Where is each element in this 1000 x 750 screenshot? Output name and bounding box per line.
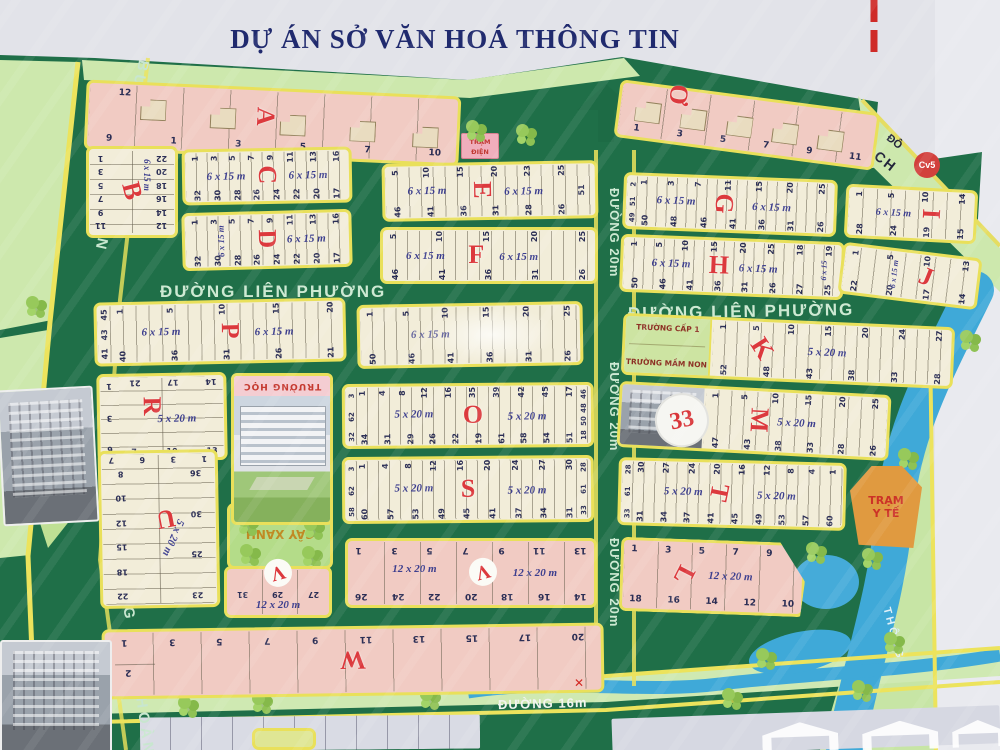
dim-label: 6 x 15 m: [216, 225, 227, 257]
plot-numbers: 454341: [99, 310, 111, 358]
plot-number: 9: [311, 634, 318, 644]
block-letter-D: D: [252, 229, 282, 249]
plot-number: 3: [209, 155, 218, 162]
plot-number: 18: [580, 430, 588, 440]
plot-number: 33: [623, 508, 631, 518]
plot-number: 43: [100, 329, 109, 340]
plot-number: 14: [957, 293, 967, 305]
plot-number: 45: [463, 508, 472, 519]
plot-number: 46: [391, 269, 400, 280]
dim-label: 6 x 15 m: [411, 328, 450, 341]
plot-number: 17: [519, 632, 532, 642]
plot-number: 30: [565, 459, 574, 470]
block-letter-S: S: [461, 473, 476, 503]
plot-number: 9: [265, 154, 274, 161]
plot-number: 31: [524, 351, 533, 362]
plot-number: 13: [309, 151, 318, 162]
tree-icon: [466, 120, 479, 133]
plot-number: 5: [389, 233, 398, 240]
plot-number: 10: [115, 494, 126, 503]
plot-numbers: 510152025: [390, 232, 588, 241]
plot-numbers: 1357911: [95, 154, 106, 230]
plot-number: 54: [542, 432, 551, 443]
tram-dien-box: TRẠM ĐIỆN: [461, 133, 499, 159]
plot-number: 11: [723, 180, 732, 191]
block-F: 510152025 4641363126 6 x 15 m 6 x 15 m F: [380, 227, 598, 284]
tree-icon: [26, 296, 39, 309]
page-title: DỰ ÁN SỞ VĂN HOÁ THÔNG TIN: [175, 24, 735, 55]
school-photo-block: TRƯỜNG HỌC: [231, 373, 333, 525]
plot-number: 33: [805, 442, 815, 454]
dim-label: 6 x 15 m: [288, 169, 327, 182]
plot-number: 12: [116, 518, 127, 527]
plot-number: 28: [580, 462, 588, 472]
dim-label: 6 x 15 m: [255, 326, 294, 339]
plot-number: 1: [355, 545, 362, 555]
plot-number: 28: [233, 255, 242, 266]
dim-label: 6 x 15 m: [752, 200, 791, 213]
apartment-photo-top: [0, 386, 99, 527]
plot-number: 27: [662, 462, 671, 473]
plot-number: 14: [705, 597, 718, 607]
plot-number: 20: [572, 631, 585, 641]
plot-number: 30: [191, 509, 202, 518]
dim-label: 6 x 15 m: [406, 250, 445, 262]
plot-numbers: 36302523: [190, 468, 203, 599]
plot-number: 29: [406, 433, 415, 444]
plot-number: 1: [95, 154, 106, 163]
plot-number: 10: [787, 324, 796, 336]
block-letter-A: A: [250, 106, 281, 126]
plot-numbers: 148121620242730: [359, 460, 575, 471]
plot-number: 38: [774, 440, 784, 452]
plot-number: 26: [274, 348, 283, 359]
tree-icon: [862, 548, 875, 561]
dim-label: 6 x 15 m: [738, 262, 777, 275]
plot-number: 16: [331, 213, 340, 224]
plot-number: 45: [100, 309, 109, 320]
plot-number: 49: [437, 508, 446, 519]
plot-number: 15: [116, 543, 127, 552]
dim-label: 6 x 15 m: [499, 251, 538, 263]
plot-number: 46: [393, 206, 402, 217]
plot-number: 5: [228, 155, 237, 162]
plot-number: 60: [360, 509, 369, 520]
cay-xanh-label: CÂY XANH: [246, 527, 314, 541]
tree-icon: [756, 648, 769, 661]
plot-numbers: 286133: [622, 465, 633, 517]
dim-label: 5 x 20 m: [508, 484, 547, 496]
plot-number: 31: [565, 507, 574, 518]
plot-number: 41: [706, 512, 715, 523]
plot-number: 52: [719, 364, 728, 376]
plot-number: 10: [771, 393, 781, 405]
plot-number: 24: [392, 591, 405, 601]
plot-number: 58: [348, 507, 356, 517]
plot-number: 41: [100, 348, 109, 359]
plot-number: 27: [795, 283, 804, 294]
plot-number: 19: [824, 245, 833, 256]
plot-number: 28: [524, 204, 533, 215]
plot-number: 9: [805, 146, 813, 157]
plot-number: 26: [816, 221, 825, 232]
plot-number: 22: [293, 253, 302, 264]
plot-number: 45: [730, 513, 739, 524]
school-zone: TRƯỜNG CẤP 1 TRƯỜNG MẦM NON: [624, 316, 712, 376]
plot-number: 16: [738, 464, 747, 475]
plot-number: 1: [828, 469, 837, 476]
plot-number: 1: [358, 463, 367, 470]
plot-number: 28: [233, 189, 242, 200]
dim-label: 6 x 15 m: [656, 195, 695, 208]
plot-number: 1: [855, 190, 864, 197]
dim-label: 5 x 20 m: [757, 490, 796, 503]
plot-number: 49: [754, 514, 763, 525]
plot-numbers: 81012151822: [115, 470, 128, 601]
plot-number: 23: [523, 165, 532, 176]
plot-number: 8: [398, 390, 407, 397]
block-letter-O: O: [463, 399, 483, 429]
plot-number: 37: [683, 512, 692, 523]
tree-icon: [898, 448, 911, 461]
plot-number: 31: [237, 590, 248, 599]
plot-number: 11: [359, 634, 372, 644]
plot-number: 35: [468, 387, 477, 398]
block-letter-C: C: [252, 165, 282, 184]
plot-number: 12: [743, 598, 756, 608]
bottom-green-parcel: [252, 728, 316, 750]
plot-number: 27: [537, 459, 546, 470]
plot-number: 25: [191, 550, 202, 559]
plot-number: 20: [712, 463, 721, 474]
plot-number: 22: [428, 591, 441, 601]
block-S: 36258 286133 148121620242730 60575349454…: [342, 455, 595, 524]
plot-number: 36: [757, 219, 766, 230]
plot-number: 22: [292, 188, 301, 199]
plot-number: 22: [156, 154, 167, 163]
plot-number: 22: [117, 591, 128, 600]
plot-number: 18: [156, 181, 167, 190]
plot-number: 24: [889, 225, 899, 237]
plot-numbers: 136: [105, 382, 113, 454]
plot-number: 10: [921, 191, 931, 203]
plot-number: 10: [428, 148, 441, 159]
plot-number: 10: [422, 167, 431, 178]
plot-number: 5: [216, 636, 223, 646]
tree-icon: [240, 544, 253, 557]
block-letter-R: R: [137, 396, 167, 415]
dim-label: 12 x 20 m: [708, 569, 753, 583]
plot-number: 10: [781, 599, 794, 609]
plot-numbers: 14812163539424517: [359, 387, 575, 398]
dim-label: 5 x 20 m: [394, 483, 433, 495]
plot-number: 34: [539, 507, 548, 518]
plot-number: 26: [768, 282, 777, 293]
plot-number: 7: [108, 456, 115, 465]
plot-number: 20: [860, 327, 869, 339]
plot-number: 1: [851, 249, 861, 257]
plot-number: 31: [635, 510, 644, 521]
plot-number: 36: [170, 350, 179, 361]
plot-number: 33: [890, 371, 899, 383]
plot-number: 30: [213, 190, 222, 201]
plot-number: 15: [755, 181, 764, 192]
plot-number: 22: [451, 433, 460, 444]
plot-number: 10: [217, 304, 226, 315]
plot-number: 48: [580, 403, 588, 413]
plot-number: 36: [713, 280, 722, 291]
plot-number: 13: [961, 260, 971, 272]
block-D: 13579111316 3230282624222017 6 x 15 m 6 …: [181, 209, 352, 271]
plot-number: 26: [253, 254, 262, 265]
plot-number: 20: [312, 253, 321, 264]
block-V1: V 312927 12 x 20 m: [224, 566, 332, 618]
plot-number: 5: [752, 324, 761, 331]
plot-number: 16: [667, 595, 680, 605]
plot-number: 26: [428, 433, 437, 444]
plot-number: 53: [411, 508, 420, 519]
plot-number: 22: [849, 280, 859, 292]
plot-numbers: 36232: [347, 392, 357, 441]
plot-number: 15: [956, 228, 966, 240]
subdivision-map: DỰ ÁN SỞ VĂN HOÁ THÔNG TIN ĐƯỜNG LIÊN PH…: [0, 0, 1000, 750]
plot-number: 11: [286, 214, 295, 225]
plot-numbers: 286133: [579, 463, 589, 514]
plot-number: 32: [193, 256, 202, 267]
plot-number: 12: [118, 88, 131, 99]
plot-numbers: 605753494541373431: [359, 508, 575, 519]
plot-number: 46: [699, 217, 708, 228]
plot-number: 12: [429, 460, 438, 471]
plot-number: 1: [711, 392, 720, 399]
plot-number: 8: [786, 467, 795, 474]
plot-number: 7: [762, 140, 770, 151]
dim-label: 12 x 20 m: [256, 599, 300, 611]
plot-number: 24: [897, 329, 906, 341]
plot-number: 24: [273, 254, 282, 265]
plot-number: 1: [632, 123, 640, 134]
plot-number: 11: [533, 545, 546, 555]
plot-number: 38: [847, 370, 856, 382]
plot-number: 3: [168, 636, 175, 646]
plot-number: 20: [156, 167, 167, 176]
plot-number: 9: [766, 549, 773, 559]
plot-numbers: 34312926221961585451: [359, 433, 575, 444]
plot-number: 26: [557, 204, 566, 215]
plot-number: 43: [742, 438, 752, 450]
plot-number: 10: [681, 240, 690, 251]
block-P: 454341 15101520 4036312621 6 x 15 m 6 x …: [93, 297, 346, 366]
plot-number: 28: [855, 223, 865, 235]
block-H: 15101520251819 5046413631262725 6 x 15 m…: [619, 234, 845, 301]
plot-number: 61: [497, 433, 506, 444]
tram-y-te-line2: Y TẾ: [873, 507, 900, 520]
plot-number: 20: [522, 306, 531, 317]
dim-label: 12 x 20 m: [392, 563, 436, 575]
plot-number: 12: [156, 221, 167, 230]
plot-numbers: 135791113: [355, 545, 587, 555]
plot-number: 13: [308, 214, 317, 225]
plot-number: 36: [484, 269, 493, 280]
plot-number: 61: [580, 484, 588, 494]
plot-number: 49: [628, 212, 636, 222]
plot-number: 16: [331, 151, 340, 162]
tree-icon: [722, 688, 735, 701]
plot-number: 57: [801, 515, 810, 526]
plot-number: 50: [640, 215, 649, 226]
block-G: 25149 13711152025 50484641363126 6 x 15 …: [622, 172, 838, 237]
dim-label: 6 x 15 m: [504, 185, 543, 198]
plot-numbers: 3230282624222017: [192, 189, 342, 201]
block-letter-H: H: [708, 250, 729, 281]
plot-number: 20: [312, 188, 321, 199]
plot-number: 16: [156, 194, 167, 203]
plot-number: 16: [456, 460, 465, 471]
plot-number: 51: [577, 184, 586, 195]
plot-number: 25: [556, 165, 565, 176]
plot-number: 36: [190, 468, 201, 477]
plot-number: 15: [466, 632, 479, 642]
plot-number: 32: [348, 432, 356, 442]
plot-number: 5: [228, 218, 237, 225]
plot-number: 50: [630, 277, 639, 288]
plot-number: 15: [481, 307, 490, 318]
block-Q: 1510152025 504641363126 6 x 15 m: [356, 301, 583, 369]
block-B: 1357911 222018161412 6 x 15 m B: [86, 146, 178, 238]
plot-number: 9: [265, 217, 274, 224]
plot-number: 2: [125, 667, 131, 677]
plot-numbers: 46485018: [579, 390, 589, 439]
plot-number: 2: [629, 179, 637, 189]
plot-number: 26: [578, 269, 587, 280]
plot-number: 39: [492, 387, 501, 398]
plot-number: 57: [386, 509, 395, 520]
plot-number: 31: [787, 220, 796, 231]
plot-number: 24: [510, 459, 519, 470]
plot-number: 18: [501, 591, 514, 601]
dim-label: 5 x 20 m: [394, 409, 433, 421]
plot-number: 17: [565, 386, 574, 397]
plot-number: 5: [740, 393, 749, 400]
plot-number: 26: [563, 350, 572, 361]
cv5-badge: Cv5: [914, 152, 940, 178]
plot-number: 50: [580, 416, 588, 426]
plot-number: 41: [685, 279, 694, 290]
plot-number: 14: [574, 591, 587, 601]
plot-number: 9: [95, 208, 106, 217]
block-letter-O2: Ơ: [662, 83, 694, 107]
block-V: 135791113 26242220181614 12 x 20 m 12 x …: [345, 538, 597, 608]
plot-number: 36: [485, 352, 494, 363]
plot-number: 4: [381, 463, 390, 470]
dim-label: 5 x 20 m: [807, 346, 846, 360]
plot-number: 20: [489, 166, 498, 177]
plot-number: 46: [407, 353, 416, 364]
plot-number: 5: [698, 546, 705, 556]
plot-number: 1: [190, 219, 199, 226]
block-I: 151014 28241915 6 x 15 m I: [844, 184, 979, 245]
plot-number: 19: [922, 227, 932, 239]
dim-label: 12 x 20 m: [513, 567, 557, 579]
plot-number: 19: [474, 433, 483, 444]
plot-number: 50: [368, 354, 377, 365]
tree-icon: [302, 546, 315, 559]
plot-number: 34: [360, 434, 369, 445]
plot-number: 10: [441, 307, 450, 318]
plot-number: 41: [426, 206, 435, 217]
plot-number: 15: [271, 303, 280, 314]
plot-number: 13: [574, 545, 587, 555]
plot-number: 8: [404, 462, 413, 469]
road-duong16-label: ĐƯỜNG 16m: [498, 695, 588, 712]
plot-number: 31: [492, 205, 501, 216]
tree-icon: [516, 124, 529, 137]
plot-number: 1: [121, 637, 128, 647]
plot-number: 47: [711, 437, 721, 449]
plot-number: 7: [247, 154, 256, 161]
plot-number: 15: [804, 395, 814, 407]
plot-number: 40: [118, 351, 127, 362]
apartment-photo-bottom: [0, 640, 112, 750]
dim-label: 6 x 15 m: [287, 232, 326, 245]
truong-mam-non-label: TRƯỜNG MẦM NON: [626, 357, 707, 370]
plot-number: 62: [348, 412, 356, 422]
plot-number: 3: [667, 180, 676, 187]
plot-number: 7: [732, 548, 739, 558]
plot-number: 27: [308, 590, 319, 599]
plot-number: 1: [640, 179, 649, 186]
plot-number: 32: [193, 190, 202, 201]
plot-number: 1: [719, 323, 728, 330]
plot-number: 41: [488, 508, 497, 519]
plot-number: 4: [807, 468, 816, 475]
plot-number: 8: [115, 470, 126, 479]
plot-numbers: 211714: [129, 377, 216, 388]
plot-number: 29: [272, 590, 283, 599]
plot-number: 1: [201, 454, 208, 463]
plot-number: 24: [687, 463, 696, 474]
plot-number: 18: [117, 567, 128, 576]
school-photo: [234, 396, 330, 525]
plot-number: 17: [167, 378, 178, 387]
plot-number: 7: [364, 145, 371, 155]
plot-number: 18: [629, 594, 642, 604]
plot-number: 7: [246, 217, 255, 224]
plot-number: 25: [817, 183, 826, 194]
plot-number: 41: [446, 352, 455, 363]
red-x-mark: ✕: [574, 676, 584, 690]
plot-number: 6: [139, 455, 146, 464]
plot-number: 7: [462, 545, 469, 555]
plot-number: 36: [459, 205, 468, 216]
plot-number: 42: [516, 386, 525, 397]
plot-number: 62: [348, 486, 356, 496]
plot-number: 14: [957, 193, 967, 205]
plot-number: 46: [580, 389, 588, 399]
block-letter-I: I: [916, 208, 946, 220]
plot-number: 37: [514, 507, 523, 518]
plot-number: 58: [519, 432, 528, 443]
tram-dien-line2: ĐIỆN: [462, 147, 498, 157]
plot-number: 25: [823, 284, 832, 295]
plot-number: 1: [191, 155, 200, 162]
plot-number: 26: [253, 189, 262, 200]
plot-number: 20: [738, 242, 747, 253]
plot-number: 14: [156, 208, 167, 217]
plot-numbers: 312927: [237, 590, 319, 599]
plot-number: 1: [366, 311, 375, 318]
plot-number: 5: [426, 545, 433, 555]
